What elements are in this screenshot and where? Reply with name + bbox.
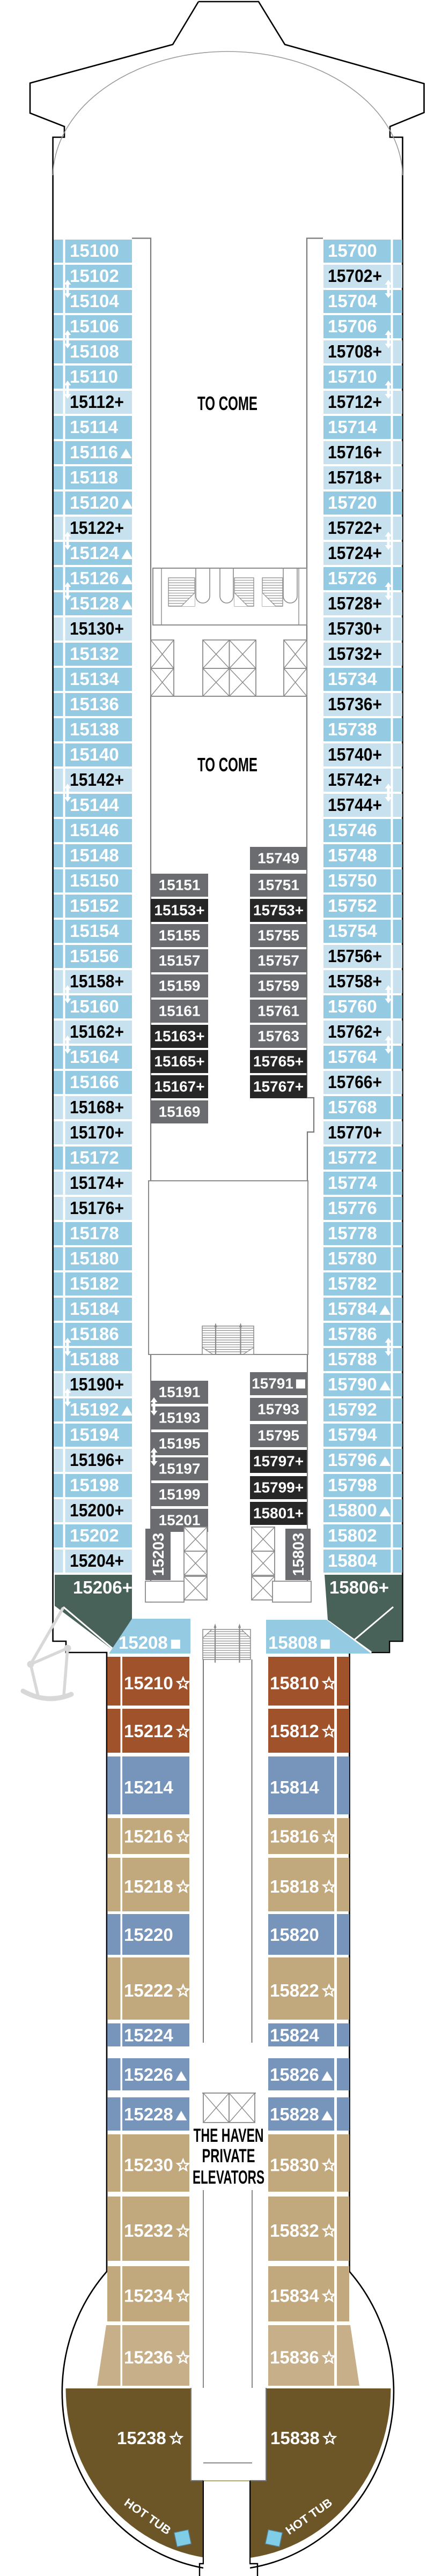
svg-text:15236: 15236 [124,2348,173,2367]
svg-text:15160: 15160 [70,996,119,1016]
svg-text:15214: 15214 [124,1777,173,1797]
svg-text:15212: 15212 [124,1721,173,1741]
svg-text:15830: 15830 [270,2155,319,2175]
svg-text:15778: 15778 [328,1223,377,1243]
svg-text:15104: 15104 [70,291,119,311]
svg-text:15708+: 15708+ [328,341,382,361]
svg-text:15734: 15734 [328,669,377,689]
svg-text:15102: 15102 [70,266,119,286]
svg-text:15712+: 15712+ [328,392,382,412]
svg-text:15232: 15232 [124,2221,173,2240]
svg-text:15710: 15710 [328,367,377,386]
svg-text:TO COME: TO COME [197,754,257,776]
svg-text:15704: 15704 [328,291,377,311]
svg-text:15826: 15826 [270,2065,319,2084]
svg-text:15176+: 15176+ [70,1198,124,1218]
svg-text:15801+: 15801+ [253,1505,304,1522]
svg-text:15812: 15812 [270,1721,319,1741]
svg-text:15120: 15120 [70,493,119,512]
svg-text:15736+: 15736+ [328,694,382,714]
svg-text:15756+: 15756+ [328,946,382,966]
svg-text:15780: 15780 [328,1248,377,1268]
svg-text:15116: 15116 [70,442,118,462]
svg-text:15799+: 15799+ [253,1479,304,1496]
svg-text:15201: 15201 [159,1512,201,1529]
svg-text:15198: 15198 [70,1475,119,1495]
svg-text:15134: 15134 [70,669,119,689]
svg-text:THE HAVEN: THE HAVEN [194,2125,264,2146]
svg-text:15728+: 15728+ [328,593,382,613]
svg-text:PRIVATE: PRIVATE [202,2146,255,2166]
svg-text:15191: 15191 [159,1384,201,1401]
svg-text:15210: 15210 [124,1673,173,1693]
svg-text:15128: 15128 [70,593,119,613]
svg-text:15720: 15720 [328,493,377,512]
svg-text:15755: 15755 [257,927,299,944]
svg-text:15766+: 15766+ [328,1072,382,1092]
svg-text:15238: 15238 [117,2428,166,2448]
svg-text:15702+: 15702+ [328,266,382,286]
svg-text:15798: 15798 [328,1475,377,1495]
svg-text:15200+: 15200+ [70,1500,124,1520]
svg-text:15797+: 15797+ [253,1453,304,1470]
svg-text:15158+: 15158+ [70,971,124,991]
svg-text:15791: 15791 [252,1375,293,1392]
svg-text:15794: 15794 [328,1425,377,1445]
svg-text:15714: 15714 [328,417,377,437]
svg-text:15148: 15148 [70,845,119,865]
svg-text:15767+: 15767+ [253,1078,304,1095]
svg-text:15206+: 15206+ [73,1577,132,1597]
svg-text:15203: 15203 [150,1533,167,1576]
svg-text:15758+: 15758+ [328,971,382,991]
svg-text:15757: 15757 [257,952,299,969]
svg-text:15742+: 15742+ [328,770,382,790]
svg-text:15152: 15152 [70,896,119,915]
svg-text:15186: 15186 [70,1324,119,1344]
svg-text:15166: 15166 [70,1072,119,1092]
svg-text:15136: 15136 [70,694,119,714]
svg-text:15199: 15199 [159,1486,201,1503]
svg-text:15730+: 15730+ [328,619,382,638]
svg-text:15716+: 15716+ [328,442,382,462]
svg-text:15770+: 15770+ [328,1122,382,1142]
svg-text:15818: 15818 [270,1877,319,1896]
svg-text:15222: 15222 [124,1981,173,2000]
svg-text:15193: 15193 [159,1410,201,1426]
svg-text:15790: 15790 [328,1374,377,1394]
svg-text:15178: 15178 [70,1223,119,1243]
svg-text:15190+: 15190+ [70,1374,124,1394]
svg-text:15748: 15748 [328,845,377,865]
svg-text:15763: 15763 [257,1028,299,1045]
svg-text:15762+: 15762+ [328,1022,382,1041]
svg-text:15142+: 15142+ [70,770,124,790]
svg-text:15802: 15802 [328,1525,377,1545]
svg-text:15759: 15759 [257,978,299,994]
svg-text:TO COME: TO COME [197,392,257,414]
svg-text:15746: 15746 [328,820,377,840]
svg-text:15816: 15816 [270,1827,319,1847]
svg-text:15218: 15218 [124,1877,173,1896]
svg-text:15228: 15228 [124,2104,173,2124]
svg-text:15162+: 15162+ [70,1022,124,1041]
svg-text:15768: 15768 [328,1097,377,1117]
svg-text:15157: 15157 [159,952,201,969]
svg-text:15724+: 15724+ [328,543,382,563]
svg-text:15800: 15800 [328,1500,377,1520]
svg-text:15192: 15192 [70,1399,119,1419]
svg-text:15156: 15156 [70,946,119,966]
svg-text:15159: 15159 [159,978,201,994]
svg-text:15732+: 15732+ [328,644,382,664]
svg-text:15793: 15793 [257,1401,299,1418]
svg-text:15220: 15220 [124,1925,173,1945]
svg-text:15234: 15234 [124,2286,173,2306]
svg-text:15754: 15754 [328,921,377,941]
svg-text:15167+: 15167+ [154,1078,204,1095]
svg-text:15814: 15814 [270,1777,319,1797]
svg-text:15764: 15764 [328,1047,377,1067]
svg-text:15796: 15796 [328,1450,377,1470]
svg-text:15700: 15700 [328,241,377,260]
svg-text:15718+: 15718+ [328,467,382,487]
svg-text:15788: 15788 [328,1349,377,1369]
svg-text:15126: 15126 [70,568,119,588]
svg-text:15153+: 15153+ [154,902,204,919]
svg-text:15124: 15124 [70,543,119,563]
svg-text:15165+: 15165+ [154,1053,204,1070]
svg-text:15824: 15824 [270,2026,319,2045]
svg-text:15760: 15760 [328,996,377,1016]
svg-text:15182: 15182 [70,1274,119,1293]
svg-text:15751: 15751 [257,877,299,894]
svg-text:15151: 15151 [159,877,201,894]
svg-text:15216: 15216 [124,1827,173,1847]
svg-text:15836: 15836 [270,2348,319,2367]
svg-text:15184: 15184 [70,1299,119,1319]
svg-text:15180: 15180 [70,1248,119,1268]
svg-text:15172: 15172 [70,1148,119,1167]
svg-text:15740+: 15740+ [328,744,382,764]
svg-text:15706: 15706 [328,316,377,336]
svg-text:15224: 15224 [124,2026,173,2045]
svg-text:15154: 15154 [70,921,119,941]
svg-text:15140: 15140 [70,744,119,764]
svg-text:15808: 15808 [268,1633,318,1652]
svg-text:15144: 15144 [70,795,119,815]
svg-text:15197: 15197 [159,1461,201,1477]
svg-text:15782: 15782 [328,1274,377,1293]
svg-text:15106: 15106 [70,316,119,336]
svg-text:15820: 15820 [270,1925,319,1945]
svg-text:15132: 15132 [70,644,119,664]
svg-text:15168+: 15168+ [70,1097,124,1117]
svg-text:15838: 15838 [270,2428,320,2448]
svg-text:15204+: 15204+ [70,1551,124,1570]
svg-text:15828: 15828 [270,2104,319,2124]
svg-text:15138: 15138 [70,719,119,739]
svg-text:15122+: 15122+ [70,518,124,538]
svg-text:15194: 15194 [70,1425,119,1445]
svg-text:15822: 15822 [270,1981,319,2000]
svg-text:15112+: 15112+ [70,392,124,412]
svg-text:15784: 15784 [328,1299,377,1319]
svg-text:15164: 15164 [70,1047,119,1067]
svg-text:15749: 15749 [257,850,299,867]
svg-text:15196+: 15196+ [70,1450,124,1470]
svg-text:15114: 15114 [70,417,119,437]
svg-text:15772: 15772 [328,1148,377,1167]
svg-text:15738: 15738 [328,719,377,739]
svg-text:15155: 15155 [159,927,201,944]
svg-text:15118: 15118 [70,467,118,487]
svg-text:15803: 15803 [290,1533,307,1576]
svg-text:15169: 15169 [159,1104,201,1120]
svg-text:15774: 15774 [328,1173,377,1193]
svg-text:15786: 15786 [328,1324,377,1344]
svg-text:15100: 15100 [70,241,119,260]
svg-text:15230: 15230 [124,2155,173,2175]
svg-text:15108: 15108 [70,341,119,361]
svg-text:15202: 15202 [70,1525,119,1545]
svg-text:15188: 15188 [70,1349,119,1369]
svg-text:15795: 15795 [257,1427,299,1444]
svg-text:15130+: 15130+ [70,619,124,638]
svg-text:15765+: 15765+ [253,1053,304,1070]
svg-text:15726: 15726 [328,568,377,588]
svg-text:15806+: 15806+ [329,1577,389,1597]
svg-text:15195: 15195 [159,1435,201,1452]
svg-text:15804: 15804 [328,1551,377,1570]
svg-text:15792: 15792 [328,1399,377,1419]
svg-text:15208: 15208 [119,1633,168,1652]
svg-text:15150: 15150 [70,870,119,890]
svg-text:15753+: 15753+ [253,902,304,919]
svg-text:15146: 15146 [70,820,119,840]
svg-text:15832: 15832 [270,2221,319,2240]
svg-text:15161: 15161 [159,1003,201,1019]
svg-text:15744+: 15744+ [328,795,382,815]
svg-text:15834: 15834 [270,2286,319,2306]
svg-text:15110: 15110 [70,367,118,386]
svg-text:15722+: 15722+ [328,518,382,538]
svg-text:15750: 15750 [328,870,377,890]
svg-text:15226: 15226 [124,2065,173,2084]
svg-text:15170+: 15170+ [70,1122,124,1142]
svg-text:15752: 15752 [328,896,377,915]
svg-text:15810: 15810 [270,1673,319,1693]
svg-text:15163+: 15163+ [154,1028,204,1045]
svg-text:15776: 15776 [328,1198,377,1218]
svg-text:ELEVATORS: ELEVATORS [193,2167,264,2188]
svg-text:15174+: 15174+ [70,1173,124,1193]
svg-text:15761: 15761 [257,1003,299,1019]
